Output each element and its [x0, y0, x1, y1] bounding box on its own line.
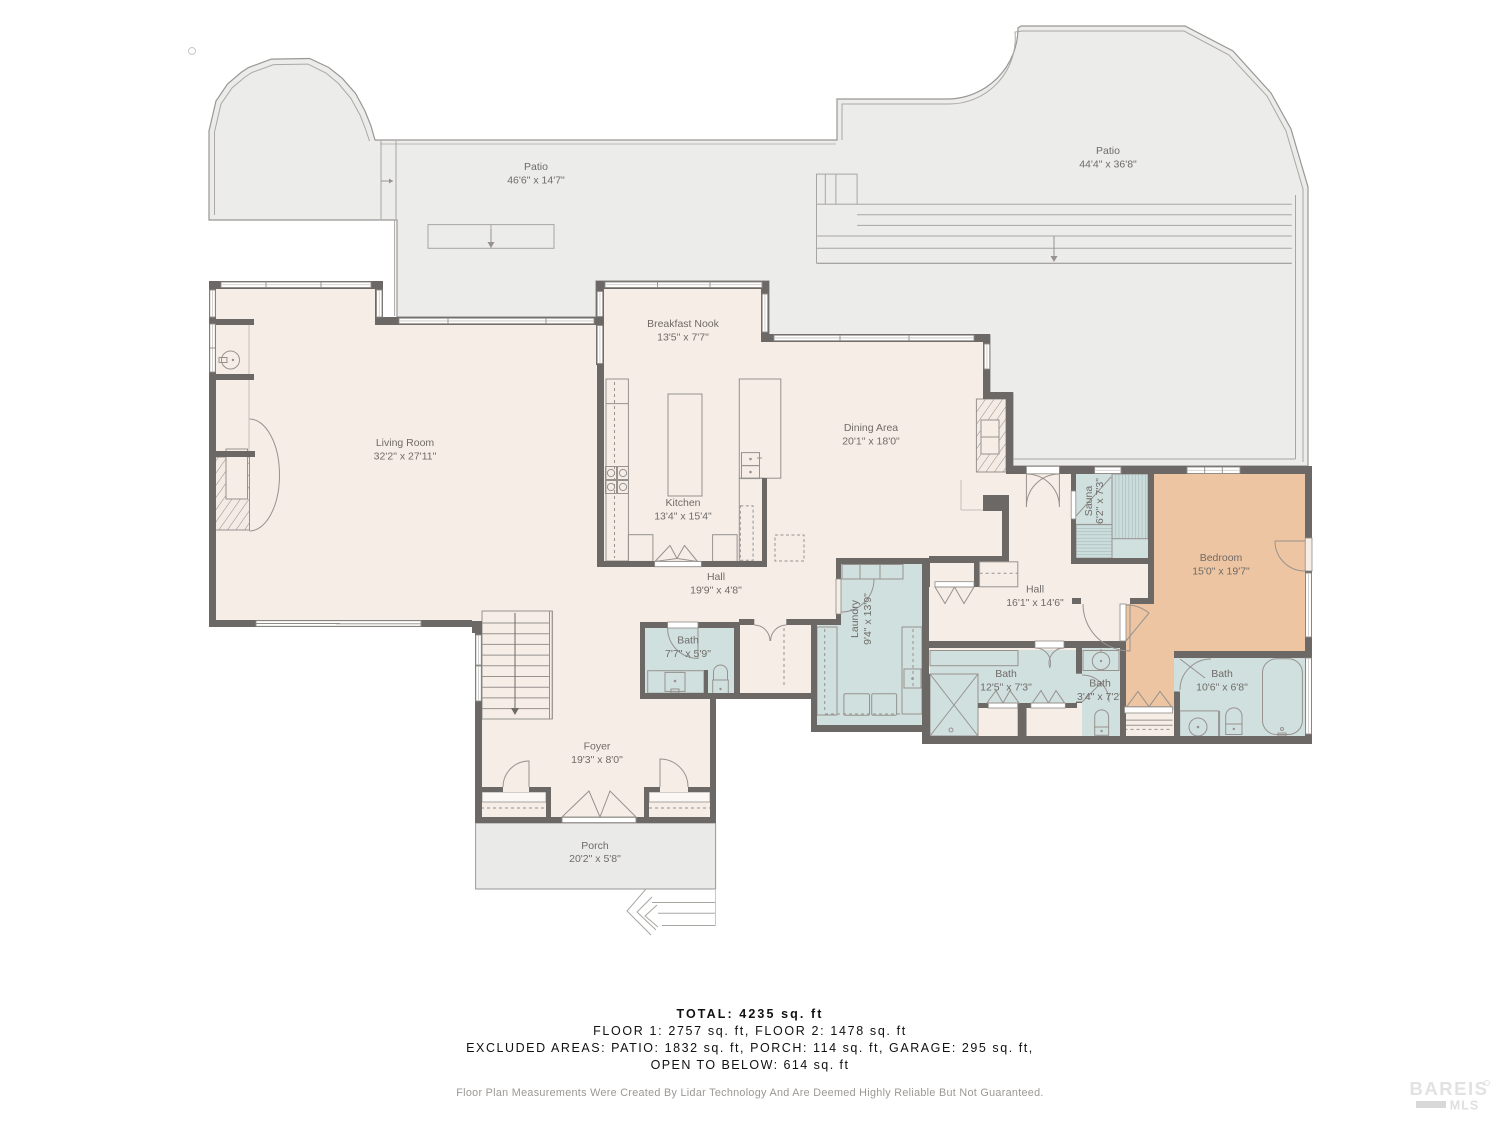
svg-text:Patio: Patio	[1096, 145, 1120, 157]
svg-text:19'3" x 8'0": 19'3" x 8'0"	[571, 754, 623, 766]
svg-text:19'9" x 4'8": 19'9" x 4'8"	[690, 585, 742, 597]
svg-text:13'5" x 7'7": 13'5" x 7'7"	[657, 332, 709, 344]
svg-text:Breakfast Nook: Breakfast Nook	[647, 318, 720, 330]
svg-text:Porch: Porch	[581, 840, 609, 852]
svg-text:Bedroom: Bedroom	[1200, 552, 1243, 564]
svg-text:MLS: MLS	[1450, 1099, 1479, 1113]
svg-text:OPEN TO BELOW: 614 sq. ft: OPEN TO BELOW: 614 sq. ft	[651, 1058, 850, 1072]
svg-text:Foyer: Foyer	[584, 741, 611, 753]
svg-text:BAREIS: BAREIS	[1410, 1078, 1489, 1099]
svg-text:Dining Area: Dining Area	[844, 422, 898, 434]
svg-text:13'4" x 15'4": 13'4" x 15'4"	[654, 511, 712, 523]
svg-text:6'2" x 7'3": 6'2" x 7'3"	[1094, 478, 1106, 524]
svg-text:32'2" x 27'11": 32'2" x 27'11"	[374, 451, 437, 463]
svg-text:Hall: Hall	[707, 571, 725, 583]
svg-text:Kitchen: Kitchen	[665, 497, 700, 509]
svg-text:12'5" x 7'3": 12'5" x 7'3"	[980, 682, 1032, 694]
svg-text:Patio: Patio	[524, 161, 548, 173]
svg-text:Bath: Bath	[677, 635, 699, 647]
svg-text:44'4" x 36'8": 44'4" x 36'8"	[1079, 159, 1137, 171]
svg-text:Living Room: Living Room	[376, 437, 435, 449]
svg-text:15'0" x 19'7": 15'0" x 19'7"	[1192, 566, 1250, 578]
svg-text:10'6" x 6'8": 10'6" x 6'8"	[1196, 682, 1248, 694]
svg-text:Bath: Bath	[1089, 678, 1111, 690]
svg-text:Bath: Bath	[1211, 668, 1233, 680]
svg-text:20'2" x 5'8": 20'2" x 5'8"	[569, 853, 621, 865]
svg-text:9'4" x 13'9": 9'4" x 13'9"	[862, 593, 874, 645]
svg-text:Floor Plan Measurements Were C: Floor Plan Measurements Were Created By …	[456, 1087, 1043, 1099]
svg-text:TOTAL: 4235 sq. ft: TOTAL: 4235 sq. ft	[676, 1007, 823, 1021]
svg-text:20'1" x 18'0": 20'1" x 18'0"	[842, 436, 900, 448]
svg-text:46'6" x 14'7": 46'6" x 14'7"	[507, 175, 565, 187]
svg-text:Laundry: Laundry	[849, 599, 861, 638]
svg-text:EXCLUDED AREAS: PATIO: 1832 sq: EXCLUDED AREAS: PATIO: 1832 sq. ft, PORC…	[466, 1041, 1034, 1055]
svg-text:3'4" x 7'2": 3'4" x 7'2"	[1077, 691, 1123, 703]
svg-text:FLOOR 1: 2757 sq. ft, FLOOR 2:: FLOOR 1: 2757 sq. ft, FLOOR 2: 1478 sq. …	[593, 1024, 907, 1038]
svg-text:Bath: Bath	[995, 668, 1017, 680]
svg-text:16'1" x 14'6": 16'1" x 14'6"	[1006, 597, 1064, 609]
svg-text:Hall: Hall	[1026, 584, 1044, 596]
svg-text:7'7" x 5'9": 7'7" x 5'9"	[665, 648, 711, 660]
